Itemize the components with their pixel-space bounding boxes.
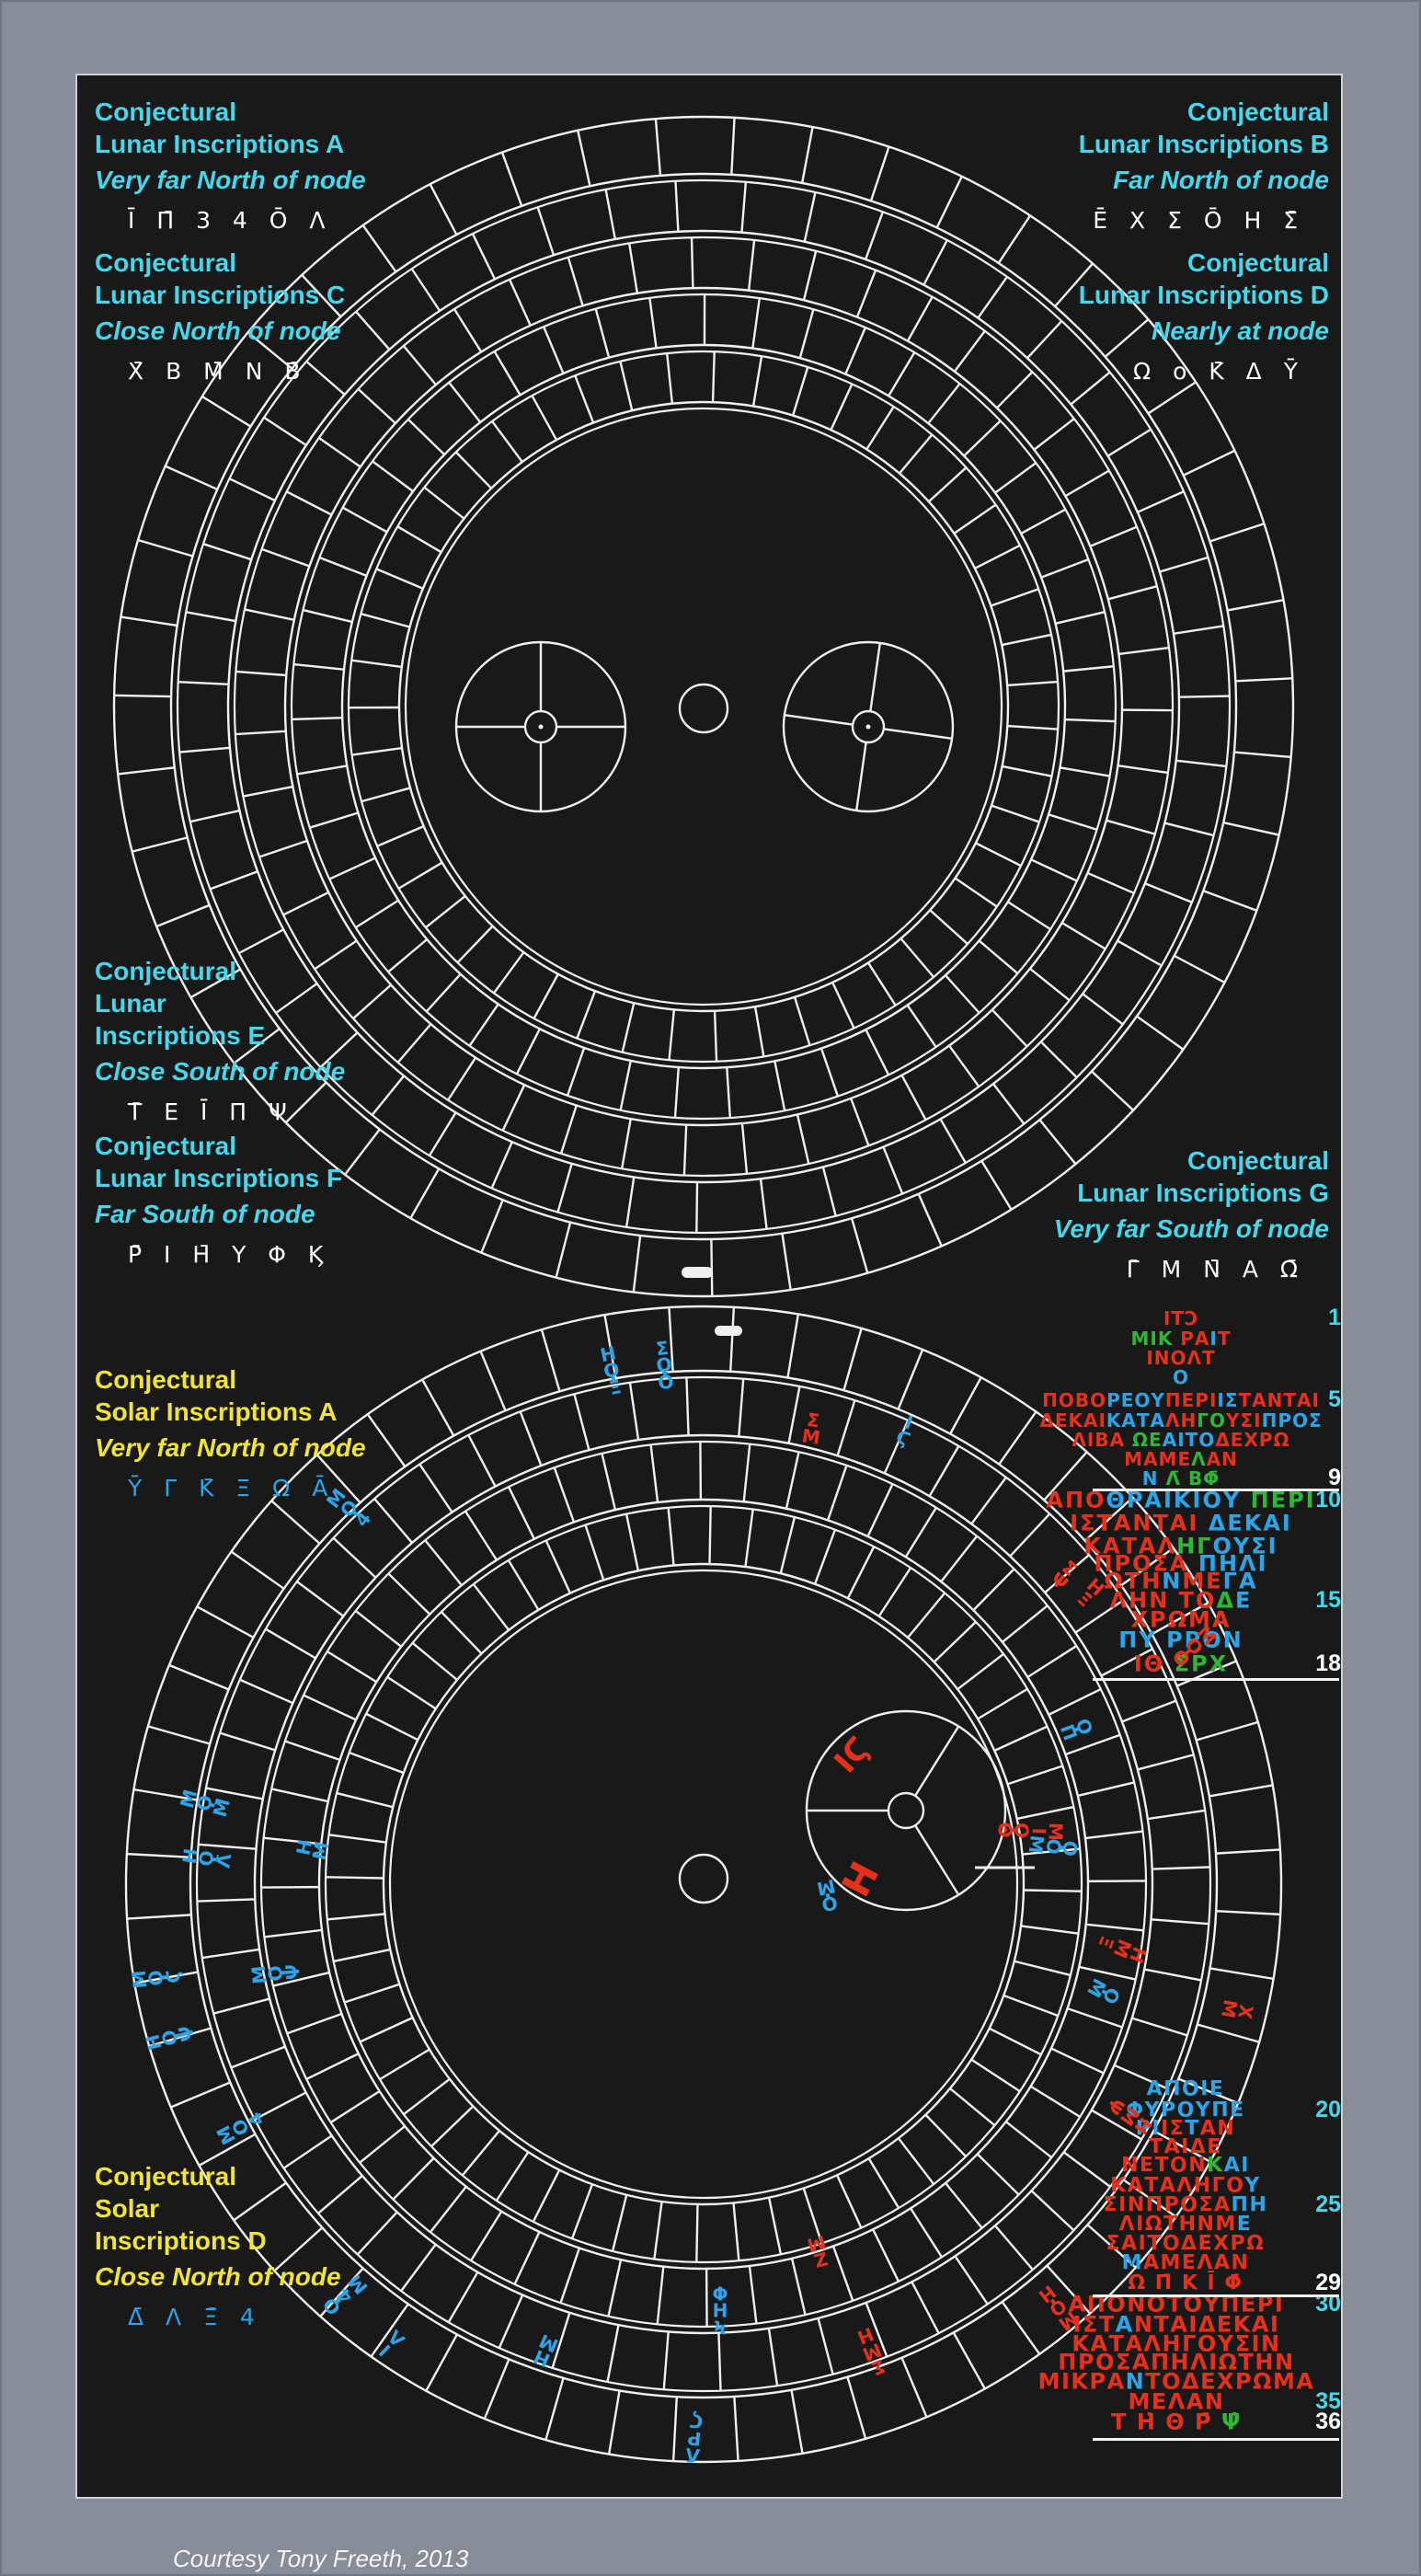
label-title: Conjectural xyxy=(95,955,345,987)
poster: Courtesy Tony Freeth, 2013 ConjecturalLu… xyxy=(0,0,1421,2576)
inscription-segment: ΑΠΟΙΕ xyxy=(1147,2077,1225,2100)
label-title: Conjectural xyxy=(95,1363,366,1396)
inscription-segment: ΔΕΚΑΙ xyxy=(1198,1511,1291,1536)
inscription-separator xyxy=(1093,1678,1339,1681)
label-title: Conjectural xyxy=(95,247,345,279)
label-title: Lunar Inscriptions D xyxy=(1079,279,1329,311)
eclipse-glyph: Μ Ϙ Μ̄ xyxy=(178,1788,232,1819)
eclipse-glyph: Η Μ xyxy=(530,2331,560,2370)
inscription-separator xyxy=(1093,1489,1339,1491)
inscription-segment: Ψ̇ xyxy=(1221,2409,1242,2435)
label-title: Lunar Inscriptions B xyxy=(1079,128,1329,160)
inscription-segment: ΙΣ xyxy=(1217,1389,1238,1411)
label-title: Solar xyxy=(95,2192,341,2225)
label-lunar-d: ConjecturalLunar Inscriptions DNearly at… xyxy=(1079,247,1329,385)
label-subtitle: Far North of node xyxy=(1079,164,1329,196)
glyph-group-row: Δ̄ Λ Ξ̄ 4 xyxy=(95,2304,341,2331)
label-title: Conjectural xyxy=(95,96,366,128)
inscription-line: ΙΣΤΑΝΤΑΙ ΔΕΚΑΙ xyxy=(1037,1511,1324,1536)
eclipse-glyph: Η Ϙ Ξ̄ xyxy=(599,1344,625,1397)
label-lunar-g: ConjecturalLunar Inscriptions GVery far … xyxy=(1054,1144,1329,1283)
label-lunar-c: ConjecturalLunar Inscriptions CClose Nor… xyxy=(95,247,345,385)
label-title: Solar Inscriptions A xyxy=(95,1396,366,1428)
eclipse-glyph: Η Μ Ξ xyxy=(1095,1930,1150,1966)
label-subtitle: Very far North of node xyxy=(95,164,366,196)
eclipse-glyph: Σ Ϙ Ō xyxy=(654,1340,675,1392)
label-title: Lunar Inscriptions F xyxy=(95,1162,342,1194)
eclipse-glyph: Μ Ϙ Ϛ xyxy=(131,1967,183,1990)
inscription-line: ΠΟΒΟΡΕΟΥΠΕΡΙΙΣΤΑΝΤΑΙ xyxy=(1037,1389,1324,1411)
exeligmos-glyph: Η xyxy=(833,1854,888,1903)
eclipse-glyph: Ι Ϛ xyxy=(894,1412,918,1449)
eclipse-glyph: Μ̇ Ι Ϙ Θ xyxy=(996,1821,1064,1841)
label-title: Lunar Inscriptions A xyxy=(95,128,366,160)
line-number: 18 xyxy=(1310,1650,1341,1677)
label-subtitle: Close North of node xyxy=(95,315,345,347)
eclipse-glyph: Σ Μ xyxy=(801,1410,824,1446)
label-lunar-f: ConjecturalLunar Inscriptions FFar South… xyxy=(95,1130,342,1269)
label-subtitle: Close North of node xyxy=(95,2260,341,2293)
inscription-segment: Ν xyxy=(1142,1467,1166,1489)
eclipse-glyph: Ι Λ xyxy=(374,2327,408,2361)
inscription-line: Ν Λ̄ ΒΦ̄ xyxy=(1037,1467,1324,1489)
label-title: Conjectural xyxy=(1079,96,1329,128)
eclipse-glyph: Λ̄ Ρ Ϛ xyxy=(684,2412,704,2464)
glyph-group-row: Ρ̄ Ι Η̄ Υ Φ Ϗ xyxy=(95,1241,342,1269)
inscription-separator xyxy=(1093,2438,1339,2441)
label-title: Inscriptions D xyxy=(95,2225,341,2257)
eclipse-glyph: Μ Ο 4 xyxy=(214,2107,268,2146)
eclipse-glyph: Ϙ Μ xyxy=(1084,1976,1123,2008)
inscription-line: Ο xyxy=(1037,1366,1324,1388)
eclipse-glyph: Ζ Μ xyxy=(806,2233,832,2271)
label-solar-a: ConjecturalSolar Inscriptions AVery far … xyxy=(95,1363,366,1502)
label-subtitle: Nearly at node xyxy=(1079,315,1329,347)
eclipse-glyph: Χ Μ xyxy=(1219,1998,1255,2022)
eclipse-glyph: Η Ϙ Ψ xyxy=(143,2024,197,2053)
label-subtitle: Close South of node xyxy=(95,1055,345,1087)
label-solar-d: ConjecturalSolarInscriptions DClose Nort… xyxy=(95,2160,341,2331)
label-lunar-a: ConjecturalLunar Inscriptions AVery far … xyxy=(95,96,366,235)
line-number: 36 xyxy=(1310,2409,1341,2435)
eclipse-glyph: Η Ϙ Λ̄ xyxy=(180,1847,233,1870)
inscription-segment: Ο xyxy=(1173,1366,1189,1388)
eclipse-glyph: Σ Μ Η xyxy=(854,2325,889,2379)
label-title: Inscriptions E xyxy=(95,1019,345,1052)
glyph-group-row: Γ̄ Μ Ν̄ Α Ω̄ xyxy=(1054,1256,1329,1283)
inscription-segment: ΙΤϽ xyxy=(1163,1307,1198,1329)
inscription-segment: ΠΕΡΙ xyxy=(1165,1389,1218,1411)
label-title: Conjectural xyxy=(95,2160,341,2192)
label-lunar-e: ConjecturalLunarInscriptions EClose Sout… xyxy=(95,955,345,1126)
label-title: Conjectural xyxy=(95,1130,342,1162)
label-title: Lunar Inscriptions C xyxy=(95,279,345,311)
inscription-segment: ΙΘ xyxy=(1134,1651,1175,1677)
inscription-line: Τ Η̇ Θ Ρ̄ Ψ̇ xyxy=(1033,2409,1320,2435)
inscription-segment: Λ̄ ΒΦ̄ xyxy=(1166,1467,1220,1489)
inscription-segment: ΡΕΟΥ xyxy=(1106,1389,1165,1411)
label-title: Lunar xyxy=(95,987,345,1019)
eclipse-glyph: Φ Η Ϟ xyxy=(712,2285,728,2336)
label-subtitle: Very far South of node xyxy=(1054,1213,1329,1245)
glyph-group-row: Ē Χ Σ Ō Η Σ̄ xyxy=(1079,207,1329,235)
glyph-group-row: Χ̄ Β Μ̄ Ν Β̄ xyxy=(95,358,345,385)
inscription-line: ΑΠΟΙΕ xyxy=(1042,2077,1329,2100)
label-title: Conjectural xyxy=(1079,247,1329,279)
glyph-group-row: Ω ο Κ̄ Δ Ȳ xyxy=(1079,358,1329,385)
label-title: Lunar Inscriptions G xyxy=(1054,1177,1329,1209)
inscription-segment: Τ Η̇ Θ Ρ̄ xyxy=(1111,2409,1221,2435)
inscription-line: ΙΤϽ xyxy=(1037,1307,1324,1329)
annotations-layer: ConjecturalLunar Inscriptions AVery far … xyxy=(0,0,1421,2576)
eclipse-glyph: Η Μ xyxy=(294,1836,331,1861)
inscription-segment: ΙΣΤΑΝΤΑΙ xyxy=(1070,1511,1198,1536)
inscription-segment: ΠΟΒΟ xyxy=(1042,1389,1106,1411)
eclipse-glyph: Μ Ϙ Ψ xyxy=(250,1962,303,1985)
glyph-group-row: Τ̄ Ε Ī Π Ψ xyxy=(95,1098,345,1126)
inscription-separator xyxy=(1093,2294,1339,2297)
inscription-segment: ΤΑΝΤΑΙ xyxy=(1239,1389,1320,1411)
label-title: Conjectural xyxy=(1054,1144,1329,1177)
label-subtitle: Very far North of node xyxy=(95,1432,366,1464)
exeligmos-glyph: ΙϚ xyxy=(827,1731,877,1781)
label-lunar-b: ConjecturalLunar Inscriptions BFar North… xyxy=(1079,96,1329,235)
label-subtitle: Far South of node xyxy=(95,1198,342,1230)
eclipse-glyph: Ϙ Π xyxy=(1058,1717,1094,1743)
glyph-group-row: Ī Π̄ 3 4 Ō Λ xyxy=(95,207,366,235)
